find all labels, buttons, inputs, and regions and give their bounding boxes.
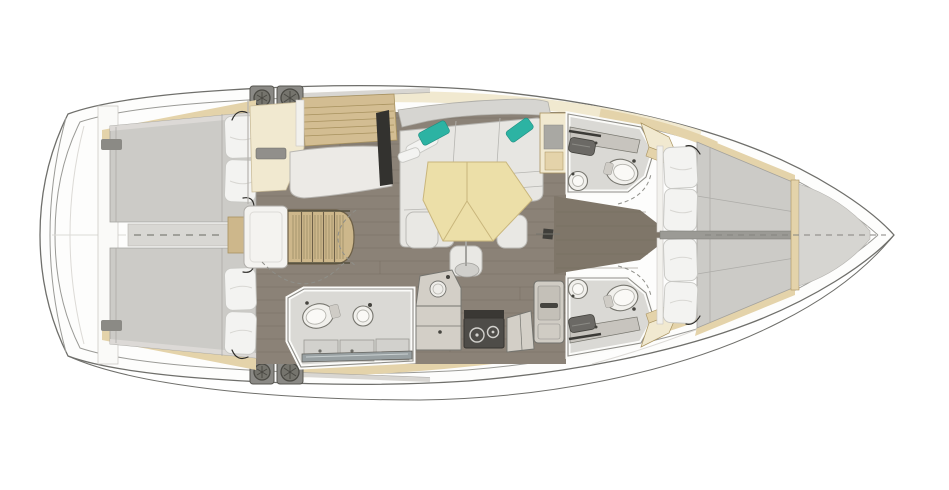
toilet-flush xyxy=(305,301,309,305)
pillow xyxy=(663,188,697,231)
engine-box xyxy=(244,206,288,268)
winch xyxy=(254,90,270,106)
fridge-handle xyxy=(540,303,558,308)
washbasin-bowl xyxy=(573,176,584,187)
basin-faucet xyxy=(572,173,575,176)
stove-back-strip xyxy=(464,310,504,318)
galley-faucet xyxy=(446,275,450,279)
toilet-flush xyxy=(632,159,636,163)
burner-center xyxy=(492,331,495,334)
cabinet-door xyxy=(545,152,563,170)
sink-faucet xyxy=(595,142,598,145)
nav-station xyxy=(248,94,397,204)
galley-sink xyxy=(430,281,446,297)
vent xyxy=(101,139,122,150)
berth-edge xyxy=(657,146,663,232)
shower-drain xyxy=(350,349,353,352)
forward-head-port xyxy=(568,114,654,192)
walkway-step-block xyxy=(228,217,244,253)
chart-table-rim xyxy=(296,100,304,146)
yacht-floor-plan xyxy=(0,0,949,490)
lower-counter xyxy=(416,306,461,350)
vent xyxy=(256,148,286,159)
day-head xyxy=(288,289,413,367)
burner-center xyxy=(475,333,478,336)
basin-faucet xyxy=(368,303,372,307)
cabinet-tray xyxy=(544,125,563,149)
pillow xyxy=(663,146,698,189)
counter-knob xyxy=(438,330,442,334)
forward-head-starboard xyxy=(568,278,654,356)
shower-drain xyxy=(318,349,321,352)
floor-plan-canvas xyxy=(0,0,949,490)
washbasin-bowl xyxy=(357,310,369,322)
